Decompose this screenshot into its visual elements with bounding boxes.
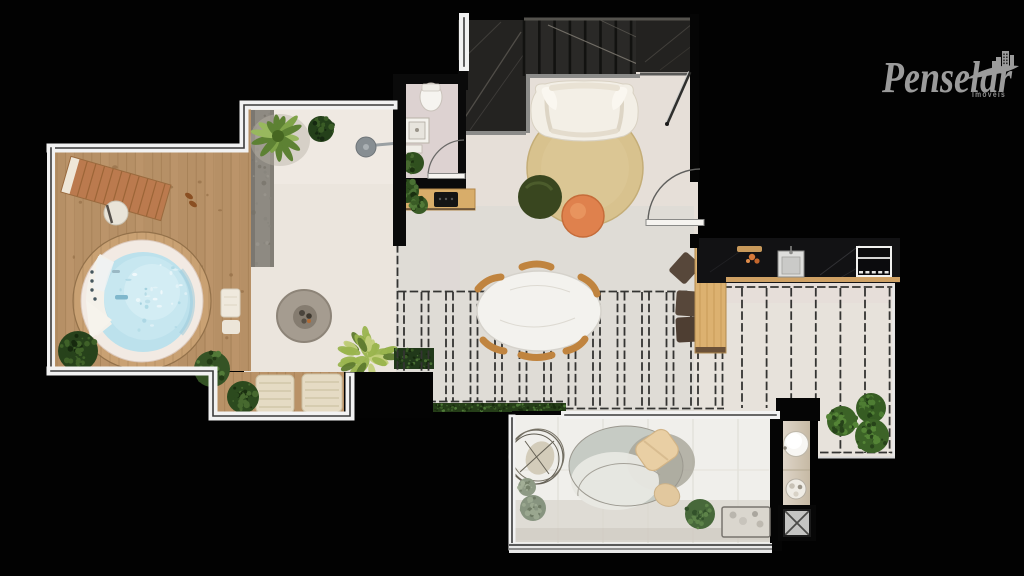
svg-text:Imóveis: Imóveis [972,90,1006,99]
